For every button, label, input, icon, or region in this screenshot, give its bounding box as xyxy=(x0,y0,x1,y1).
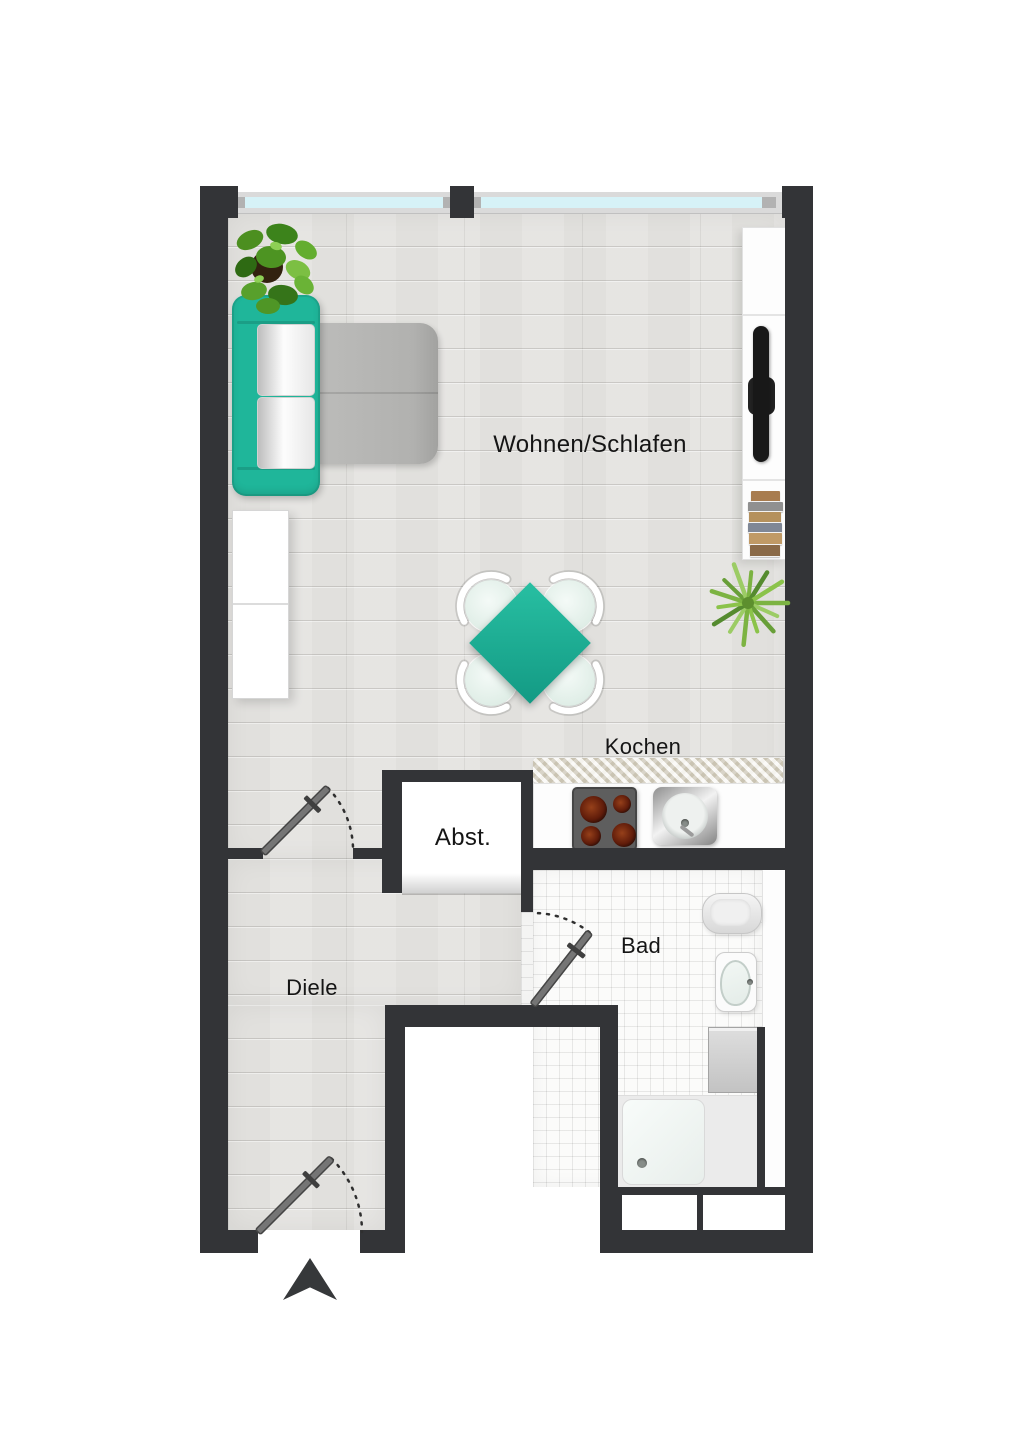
wall-bath-divider xyxy=(757,1027,765,1187)
bed-pad xyxy=(315,323,438,464)
storage-opening-shadow xyxy=(402,873,521,895)
book xyxy=(750,545,780,557)
bathroom-door-threshold xyxy=(521,912,533,1005)
wall-top-corner-left xyxy=(200,186,238,218)
window-left xyxy=(238,192,450,214)
room-label-storage: Abst. xyxy=(435,824,491,852)
tv-icon xyxy=(753,326,769,462)
washing-machine-icon xyxy=(708,1027,759,1093)
sofa-cushion xyxy=(257,397,315,469)
wardrobe xyxy=(232,510,289,699)
wall-top-corner-right xyxy=(782,186,813,218)
burner-icon xyxy=(613,795,631,813)
bath-window-right xyxy=(703,1195,785,1230)
storage-wall-left xyxy=(382,770,402,893)
burner-icon xyxy=(612,823,636,847)
wall-right xyxy=(785,218,813,1253)
room-label-living: Wohnen/Schlafen xyxy=(493,431,687,459)
bath-window-left xyxy=(622,1195,697,1230)
wall-hall-stub-right xyxy=(353,848,385,859)
wall-notch-left xyxy=(385,1005,405,1253)
shower-drain xyxy=(637,1158,647,1168)
book xyxy=(748,523,782,533)
kitchen-sink-icon xyxy=(653,787,717,845)
book-stack-icon xyxy=(747,491,784,553)
wardrobe-divider xyxy=(233,603,288,605)
window-right xyxy=(474,192,782,214)
burner-icon xyxy=(580,796,607,823)
room-label-hallway: Diele xyxy=(286,975,338,1001)
cooktop-icon xyxy=(572,787,637,851)
book xyxy=(749,512,781,523)
wall-notch-right xyxy=(600,1005,618,1253)
room-label-bath: Bad xyxy=(621,933,661,959)
sideboard-divider xyxy=(743,314,786,316)
window-end-cap xyxy=(238,197,245,208)
shower-icon xyxy=(622,1099,705,1185)
toilet-icon xyxy=(702,893,762,934)
entrance-arrow-icon xyxy=(283,1258,337,1300)
bed-pad-seam xyxy=(315,392,438,394)
book xyxy=(748,502,783,512)
sideboard-divider xyxy=(743,479,786,481)
bathroom-side-panel xyxy=(762,870,786,1187)
window-glass xyxy=(481,197,762,208)
room-label-kitchen: Kochen xyxy=(605,734,681,760)
window-end-cap xyxy=(474,197,481,208)
floor-plan: Wohnen/Schlafen Kochen Abst. Bad Diele xyxy=(0,0,1018,1440)
wall-left xyxy=(200,218,228,1253)
toilet-seat xyxy=(710,899,751,926)
storage-wall-right xyxy=(521,770,533,912)
wall-hall-stub-left xyxy=(228,848,263,859)
washbasin-icon xyxy=(715,952,757,1012)
burner-icon xyxy=(581,826,601,846)
storage-wall-top xyxy=(382,770,533,782)
wall-top-pier xyxy=(450,186,474,218)
kitchen-rug xyxy=(533,758,783,783)
book xyxy=(749,533,782,545)
sofa-cushion xyxy=(257,324,315,396)
hallway-floor-lower xyxy=(228,1005,385,1230)
window-end-cap xyxy=(443,197,450,208)
wall-kitchen-bottom xyxy=(532,848,785,870)
window-glass xyxy=(245,197,443,208)
window-end-cap xyxy=(762,197,776,208)
book xyxy=(751,491,780,502)
wall-bottom-entry-left xyxy=(200,1230,258,1253)
wall-notch-top xyxy=(385,1005,618,1027)
washbasin-faucet xyxy=(747,979,753,985)
